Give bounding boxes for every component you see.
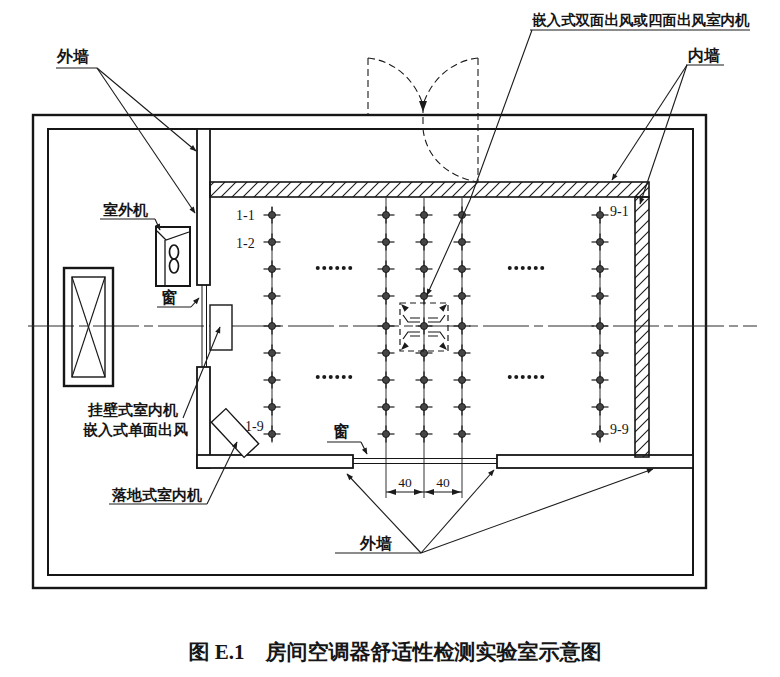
wall-segment-bottom-left-vertical xyxy=(197,367,210,468)
grid-label-9-1: 9-1 xyxy=(610,204,629,219)
label-embedded-single-outlet: 嵌入式单面出风 xyxy=(83,422,188,438)
grid-label-9-9: 9-9 xyxy=(610,422,629,437)
measurement-grid xyxy=(264,198,609,498)
label-ceiling-cassette-unit: 嵌入式双面出风或四面出风室内机 xyxy=(532,12,750,28)
dimension-value-left: 40 xyxy=(398,475,412,490)
label-outer-wall-bottom: 外墙 xyxy=(359,535,392,552)
wall-segment-bottom-right-horizontal xyxy=(497,455,693,468)
inner-wall-right xyxy=(635,197,649,457)
wall-segment-bottom-left-horizontal xyxy=(197,455,353,468)
laboratory-schematic: 40 40 外墙 嵌入式双面出风或四面出风室内机 内墙 室外机 窗 挂壁式室内机… xyxy=(0,0,780,677)
wall-segment-top-left-vertical xyxy=(197,129,210,285)
label-outdoor-unit: 室外机 xyxy=(103,201,148,218)
figure-caption: 图 E.1 房间空调器舒适性检测实验室示意图 xyxy=(188,640,601,664)
door-arrow xyxy=(419,101,427,112)
grid-label-1-9: 1-9 xyxy=(245,419,264,434)
label-floor-standing-unit: 落地式室内机 xyxy=(111,486,202,503)
label-window-bottom: 窗 xyxy=(333,422,349,440)
label-window-left: 窗 xyxy=(161,288,177,306)
grid-label-1-1: 1-1 xyxy=(236,208,255,223)
dimension-value-right: 40 xyxy=(436,475,450,490)
door-swing-dashed xyxy=(368,58,478,182)
outdoor-unit xyxy=(156,227,190,286)
inner-wall-hatched xyxy=(210,182,649,457)
label-inner-wall: 内墙 xyxy=(688,47,720,64)
label-wall-mounted-unit: 挂壁式室内机 xyxy=(87,401,178,418)
air-handler-unit xyxy=(64,268,113,386)
leader-lines xyxy=(97,30,687,553)
inner-wall-top xyxy=(210,182,649,197)
grid-label-1-2: 1-2 xyxy=(236,236,255,251)
schematic-canvas: 40 40 外墙 嵌入式双面出风或四面出风室内机 内墙 室外机 窗 挂壁式室内机… xyxy=(0,0,780,677)
label-outer-wall-top: 外墙 xyxy=(56,48,89,65)
